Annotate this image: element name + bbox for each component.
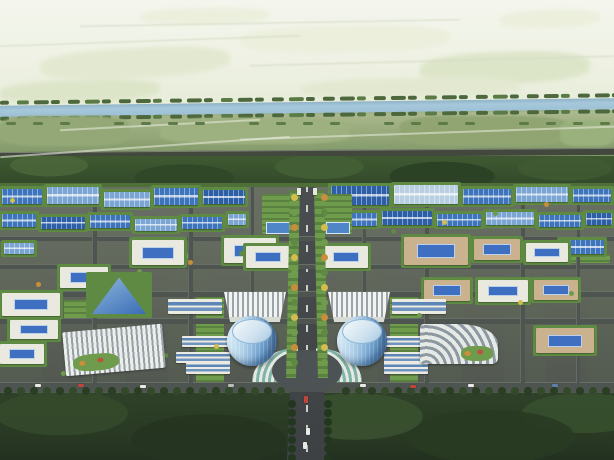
riverside-tree-row	[153, 99, 162, 103]
boulevard-tree	[160, 387, 168, 395]
office-slab-building	[384, 362, 428, 374]
riverside-tree-row	[561, 94, 570, 98]
axis-tree	[291, 269, 298, 276]
farm-field-patch	[500, 8, 601, 29]
park-tree	[544, 202, 549, 207]
courtyard-atrium	[255, 252, 281, 263]
factory-roof	[516, 187, 568, 202]
boulevard-tree	[186, 387, 194, 395]
car-on-boulevard	[552, 384, 558, 387]
boulevard-tree	[225, 387, 233, 395]
boulevard-tree	[407, 387, 415, 395]
factory-roof	[182, 217, 222, 229]
car-on-axis	[304, 396, 308, 403]
axis-tree	[321, 254, 328, 261]
boulevard-tree	[459, 387, 467, 395]
courtyard-atrium	[9, 349, 35, 359]
field-tree-row	[600, 122, 610, 125]
park-tree	[36, 282, 41, 287]
axis-tree	[291, 239, 298, 246]
forest-road-tree	[288, 418, 296, 426]
park-tree	[569, 291, 574, 296]
boulevard-tree	[17, 387, 25, 395]
riverside-tree-row	[357, 112, 366, 116]
field-tree-row	[573, 122, 583, 125]
axis-tree	[291, 344, 298, 351]
riverside-tree-row	[323, 97, 335, 101]
boulevard-tree	[511, 387, 519, 395]
axis-tree	[291, 299, 298, 306]
riverside-tree-row	[425, 95, 437, 99]
boulevard-tree	[420, 387, 428, 395]
plaza-disc	[272, 350, 342, 392]
riverside-tree-row	[391, 112, 406, 116]
car-on-axis	[306, 428, 310, 435]
riverside-tree-row	[85, 100, 100, 104]
field-patch	[0, 116, 130, 146]
riverside-tree-row	[544, 110, 559, 114]
field-tree-row	[195, 122, 205, 125]
riverside-tree-row	[561, 110, 570, 114]
axis-tree	[291, 209, 298, 216]
factory-roof	[382, 211, 432, 225]
field-tree-row	[6, 122, 16, 125]
boulevard-tree	[537, 387, 545, 395]
courtyard-atrium	[548, 335, 583, 347]
boulevard-tree	[147, 387, 155, 395]
axis-tree	[321, 314, 328, 321]
boulevard-tree	[485, 387, 493, 395]
boulevard-tree	[355, 387, 363, 395]
axis-tree	[291, 284, 298, 291]
field-tree-row	[384, 122, 394, 125]
factory-roof	[4, 243, 34, 254]
courtyard-building	[526, 243, 568, 262]
garden-pool	[326, 222, 350, 234]
forest-road-tree	[324, 409, 332, 417]
boulevard-tree	[108, 387, 116, 395]
boulevard-tree	[82, 387, 90, 395]
courtyard-building	[2, 293, 60, 316]
riverside-tree-row	[238, 98, 253, 102]
riverside-tree-row	[340, 96, 355, 100]
boulevard-tree	[134, 387, 142, 395]
axis-tree	[291, 254, 298, 261]
office-slab-building	[186, 362, 230, 374]
factory-roof	[154, 188, 198, 205]
forest-road-tree	[288, 427, 296, 435]
forest-road-tree	[288, 436, 296, 444]
forest-road-tree	[324, 400, 332, 408]
office-slab-building	[392, 299, 446, 314]
boulevard-tree	[381, 387, 389, 395]
axis-tree	[291, 194, 298, 201]
exhibition-hall-east	[420, 324, 498, 364]
riverside-tree-row	[595, 93, 610, 97]
exhibition-hall-west	[62, 324, 165, 377]
garden-pool	[266, 222, 290, 234]
riverside-tree-row	[578, 110, 590, 114]
riverside-tree-row	[170, 115, 182, 119]
riverside-tree-row	[136, 115, 151, 119]
park-tree	[493, 211, 498, 216]
courtyard-building	[424, 280, 470, 301]
riverside-tree-row	[374, 112, 386, 116]
riverside-tree-row	[306, 97, 315, 101]
axis-tree	[321, 269, 328, 276]
axis-tree	[321, 209, 328, 216]
boulevard-tree	[446, 387, 454, 395]
riverside-tree-row	[323, 113, 335, 117]
park-tree	[391, 229, 396, 234]
forest-road-tree	[324, 418, 332, 426]
riverside-tree-row	[544, 94, 559, 98]
axis-tree	[321, 224, 328, 231]
axis-tree	[291, 314, 298, 321]
field-tree-row	[141, 122, 151, 125]
courtyard-building	[324, 246, 368, 268]
field-tree-row	[546, 122, 556, 125]
boulevard-tree	[212, 387, 220, 395]
boulevard-tree	[95, 387, 103, 395]
riverside-tree-row	[408, 112, 417, 116]
riverside-tree-row	[221, 98, 233, 102]
axis-tree	[321, 359, 328, 366]
gateway-post	[297, 188, 301, 195]
park-tree	[518, 300, 523, 305]
riverside-tree-row	[51, 100, 60, 104]
forest-road-tree	[324, 454, 332, 460]
courtyard-building	[404, 237, 468, 265]
courtyard-atrium	[14, 299, 49, 310]
riverside-tree-row	[153, 115, 162, 119]
park-tree	[417, 313, 422, 318]
courtyard-atrium	[333, 252, 359, 263]
axis-tree	[291, 224, 298, 231]
riverside-tree-row	[68, 100, 80, 104]
axis-tree	[291, 329, 298, 336]
courtyard-atrium	[433, 285, 461, 295]
car-on-axis	[303, 442, 307, 449]
riverside-tree-row	[289, 113, 304, 117]
riverside-tree-row	[476, 95, 488, 99]
axis-tree	[321, 329, 328, 336]
exhibition-roof-garden	[461, 346, 494, 361]
factory-roof	[203, 190, 245, 204]
factory-roof	[586, 213, 612, 225]
car-on-boulevard	[140, 385, 146, 388]
riverside-tree-row	[170, 99, 182, 103]
boulevard-tree	[563, 387, 571, 395]
factory-roof	[104, 192, 150, 207]
car-on-boulevard	[228, 384, 234, 387]
boulevard-tree	[433, 387, 441, 395]
glass-tower-east	[337, 316, 387, 366]
office-slab-building	[168, 299, 222, 314]
forest-road-tree	[288, 445, 296, 453]
boulevard-tree	[121, 387, 129, 395]
factory-roof	[135, 219, 177, 231]
riverside-tree-row	[510, 110, 519, 114]
glass-tower-west	[227, 316, 277, 366]
park-tree	[10, 198, 15, 203]
tower-roof-court	[232, 319, 272, 344]
courtyard-atrium	[20, 325, 49, 334]
factory-roof	[41, 217, 85, 229]
park-tree	[442, 220, 447, 225]
forest-road-tree	[324, 436, 332, 444]
courtyard-atrium	[142, 247, 173, 259]
axis-tree	[321, 239, 328, 246]
boulevard-tree	[69, 387, 77, 395]
factory-roof	[2, 214, 36, 227]
riverside-tree-row	[0, 101, 9, 105]
riverside-tree-row	[493, 95, 508, 99]
riverside-tree-row	[187, 98, 202, 102]
car-on-boulevard	[360, 384, 366, 387]
boulevard-tree	[277, 387, 285, 395]
courtyard-building	[478, 280, 528, 302]
boulevard-tree	[589, 387, 597, 395]
factory-roof	[573, 189, 611, 202]
farm-field-patch	[39, 43, 230, 83]
park-tree	[214, 344, 219, 349]
factory-roof	[539, 215, 581, 227]
courtyard-atrium	[488, 286, 518, 297]
boulevard-tree	[56, 387, 64, 395]
boulevard-tree	[342, 387, 350, 395]
riverside-tree-row	[136, 99, 151, 103]
field-tree-row	[60, 122, 70, 125]
boulevard-tree	[472, 387, 480, 395]
riverside-tree-row	[374, 96, 386, 100]
riverside-tree-row	[527, 110, 539, 114]
axis-tree	[321, 194, 328, 201]
factory-roof	[90, 215, 130, 228]
courtyard-building	[534, 280, 578, 300]
field-tree-row	[33, 122, 43, 125]
courtyard-atrium	[483, 244, 511, 254]
factory-roof	[228, 214, 246, 225]
forest-road-tree	[288, 454, 296, 460]
boulevard-tree	[498, 387, 506, 395]
car-on-boulevard	[78, 384, 84, 387]
riverside-tree-row	[255, 98, 264, 102]
riverside-tree-row	[340, 112, 355, 116]
riverside-tree-row	[306, 113, 315, 117]
boulevard-tree	[251, 387, 259, 395]
riverside-tree-row	[493, 111, 508, 115]
boulevard-tree	[576, 387, 584, 395]
courtyard-atrium	[543, 285, 569, 295]
factory-roof	[394, 185, 458, 204]
riverside-tree-row	[442, 111, 457, 115]
riverside-tree-row	[595, 109, 610, 113]
riverside-tree-row	[272, 113, 284, 117]
axis-tree	[321, 344, 328, 351]
axis-tree	[321, 284, 328, 291]
boulevard-tree	[43, 387, 51, 395]
courtyard-building	[10, 320, 58, 339]
riverside-tree-row	[425, 111, 437, 115]
riverside-tree-row	[102, 99, 111, 103]
car-on-boulevard	[468, 384, 474, 387]
boulevard-tree	[199, 387, 207, 395]
factory-roof	[47, 187, 99, 204]
factory-roof	[463, 189, 511, 204]
boulevard-tree	[264, 387, 272, 395]
boulevard-tree	[394, 387, 402, 395]
courtyard-building	[474, 239, 520, 260]
riverside-tree-row	[204, 98, 213, 102]
gateway-post	[313, 188, 317, 195]
field-tree-row	[168, 122, 178, 125]
courtyard-building	[246, 246, 290, 268]
boulevard-tree	[238, 387, 246, 395]
car-on-boulevard	[410, 385, 416, 388]
riverside-tree-row	[578, 94, 590, 98]
boulevard-tree	[4, 387, 12, 395]
tower-roof-court	[342, 319, 382, 344]
riverside-tree-row	[119, 99, 131, 103]
riverside-tree-row	[476, 111, 488, 115]
courtyard-atrium	[534, 248, 559, 257]
courtyard-building	[0, 344, 44, 364]
riverside-tree-row	[459, 111, 468, 115]
riverside-tree-row	[510, 94, 519, 98]
forest-road-tree	[324, 427, 332, 435]
field-tree-row	[411, 122, 421, 125]
boulevard-tree	[602, 387, 610, 395]
riverside-tree-row	[272, 97, 284, 101]
forest-road-tree	[324, 445, 332, 453]
boulevard-tree	[173, 387, 181, 395]
field-tree-row	[303, 122, 313, 125]
riverside-tree-row	[442, 95, 457, 99]
field-tree-row	[114, 122, 124, 125]
riverside-tree-row	[357, 96, 366, 100]
field-tree-row	[438, 122, 448, 125]
field-tree-row	[276, 122, 286, 125]
axis-tree	[291, 359, 298, 366]
riverside-tree-row	[527, 94, 539, 98]
boulevard-tree	[368, 387, 376, 395]
forest-road-tree	[288, 409, 296, 417]
factory-roof	[2, 189, 42, 204]
riverside-tree-row	[34, 100, 49, 104]
field-tree-row	[465, 122, 475, 125]
riverside-tree-row	[289, 97, 304, 101]
axis-tree	[321, 299, 328, 306]
forest-road-tree	[288, 400, 296, 408]
courtyard-building	[132, 240, 184, 265]
boulevard-tree	[550, 387, 558, 395]
farm-field-patch	[240, 24, 450, 54]
office-slab-building	[182, 336, 228, 347]
exhibition-roof-garden	[72, 351, 119, 373]
riverside-tree-row	[459, 95, 468, 99]
riverside-tree-row	[408, 96, 417, 100]
park-tree	[239, 251, 244, 256]
courtyard-building	[536, 328, 594, 353]
aerial-rendering-scene	[0, 0, 614, 460]
riverside-tree-row	[17, 100, 29, 104]
field-tree-row	[330, 122, 340, 125]
field-tree-row	[249, 122, 259, 125]
field-tree-row	[519, 122, 529, 125]
boulevard-tree	[30, 387, 38, 395]
riverside-tree-row	[391, 96, 406, 100]
car-on-boulevard	[35, 384, 41, 387]
courtyard-atrium	[417, 244, 455, 257]
park-tree	[188, 260, 193, 265]
boulevard-tree	[524, 387, 532, 395]
